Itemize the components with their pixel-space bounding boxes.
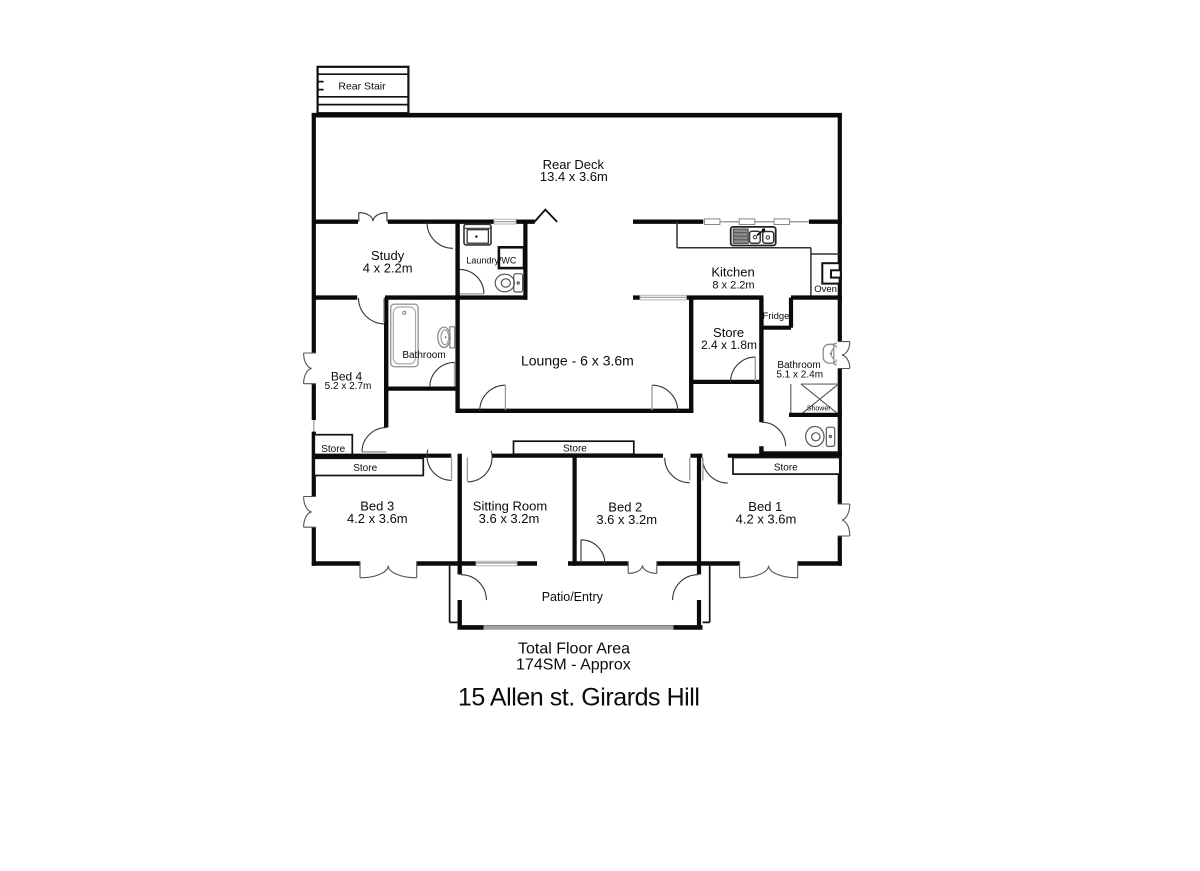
svg-text:Store: Store (321, 444, 345, 455)
svg-text:174SM - Approx: 174SM - Approx (516, 656, 631, 673)
svg-text:3.6 x 3.2m: 3.6 x 3.2m (479, 511, 540, 526)
svg-text:13.4 x 3.6m: 13.4 x 3.6m (540, 169, 608, 184)
svg-text:4 x 2.2m: 4 x 2.2m (363, 260, 413, 275)
svg-text:Lounge - 6 x 3.6m: Lounge - 6 x 3.6m (521, 353, 634, 369)
svg-text:5.2 x 2.7m: 5.2 x 2.7m (325, 381, 372, 392)
svg-text:5.1 x 2.4m: 5.1 x 2.4m (776, 370, 823, 381)
svg-text:Store: Store (353, 463, 377, 474)
svg-text:Shower: Shower (807, 406, 831, 413)
svg-text:Total Floor Area: Total Floor Area (518, 640, 630, 657)
svg-text:15 Allen st. Girards Hill: 15 Allen st. Girards Hill (458, 684, 700, 712)
svg-text:Bathroom: Bathroom (402, 350, 445, 361)
svg-text:Fridge: Fridge (763, 311, 790, 322)
svg-text:Laundry/WC: Laundry/WC (466, 256, 517, 266)
svg-text:Rear Stair: Rear Stair (338, 81, 386, 93)
svg-text:2.4 x 1.8m: 2.4 x 1.8m (701, 338, 757, 352)
svg-text:Store: Store (774, 462, 798, 473)
svg-text:4.2 x 3.6m: 4.2 x 3.6m (736, 511, 797, 526)
svg-text:Kitchen: Kitchen (711, 265, 754, 280)
svg-text:Oven: Oven (814, 284, 837, 295)
svg-text:3.6 x 3.2m: 3.6 x 3.2m (596, 512, 657, 527)
svg-text:4.2 x 3.6m: 4.2 x 3.6m (347, 511, 408, 526)
svg-text:Store: Store (563, 443, 587, 454)
svg-text:8 x 2.2m: 8 x 2.2m (712, 280, 754, 292)
svg-text:Patio/Entry: Patio/Entry (542, 590, 604, 604)
